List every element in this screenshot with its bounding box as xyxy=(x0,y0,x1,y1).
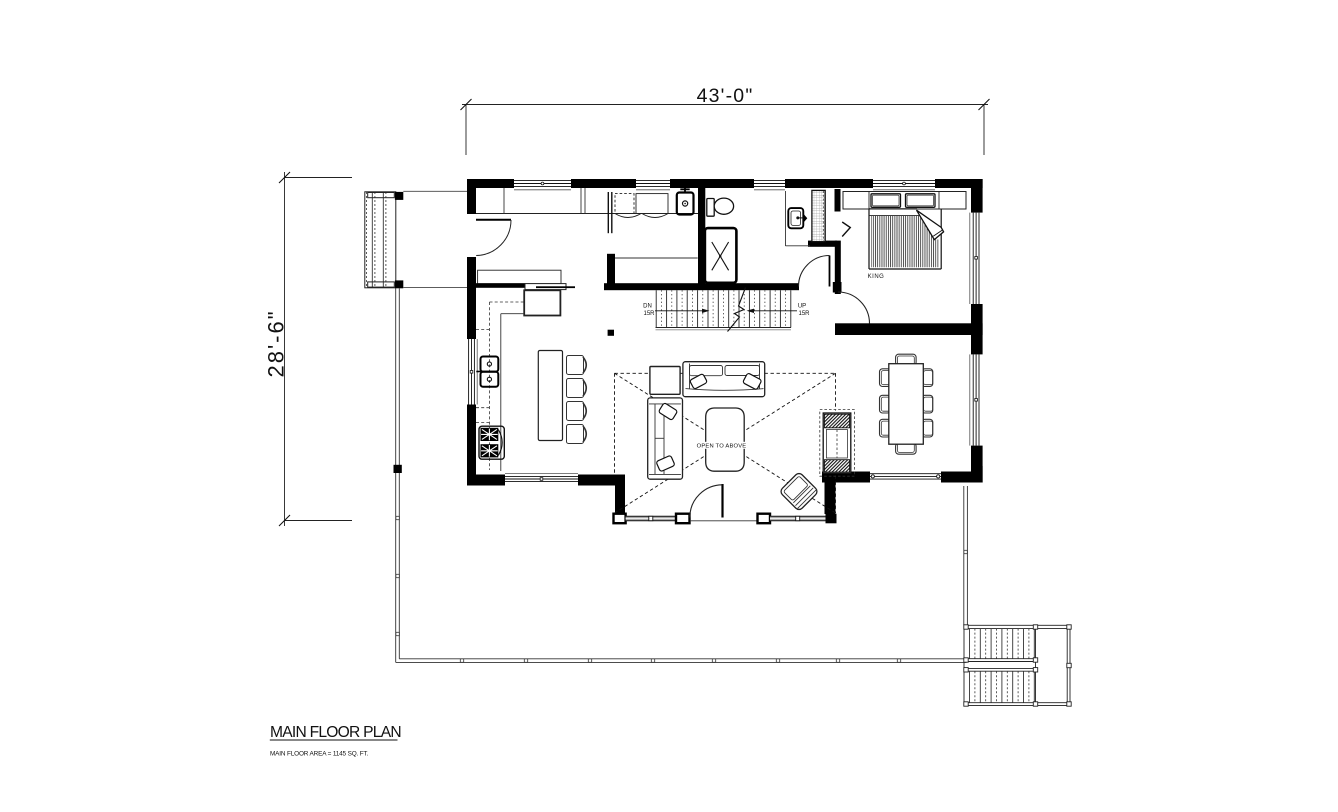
svg-text:MAIN FLOOR PLAN: MAIN FLOOR PLAN xyxy=(270,724,401,741)
svg-text:15R: 15R xyxy=(643,311,655,317)
svg-text:DN: DN xyxy=(643,304,652,310)
svg-text:OPEN TO ABOVE: OPEN TO ABOVE xyxy=(697,444,747,450)
svg-text:28'-6": 28'-6" xyxy=(264,309,289,377)
svg-text:KING: KING xyxy=(868,274,885,280)
svg-text:15R: 15R xyxy=(798,311,810,317)
svg-text:43'-0": 43'-0" xyxy=(697,85,754,107)
svg-text:MAIN FLOOR AREA = 1145 SQ. FT.: MAIN FLOOR AREA = 1145 SQ. FT. xyxy=(270,751,369,758)
svg-text:UP: UP xyxy=(798,304,806,310)
